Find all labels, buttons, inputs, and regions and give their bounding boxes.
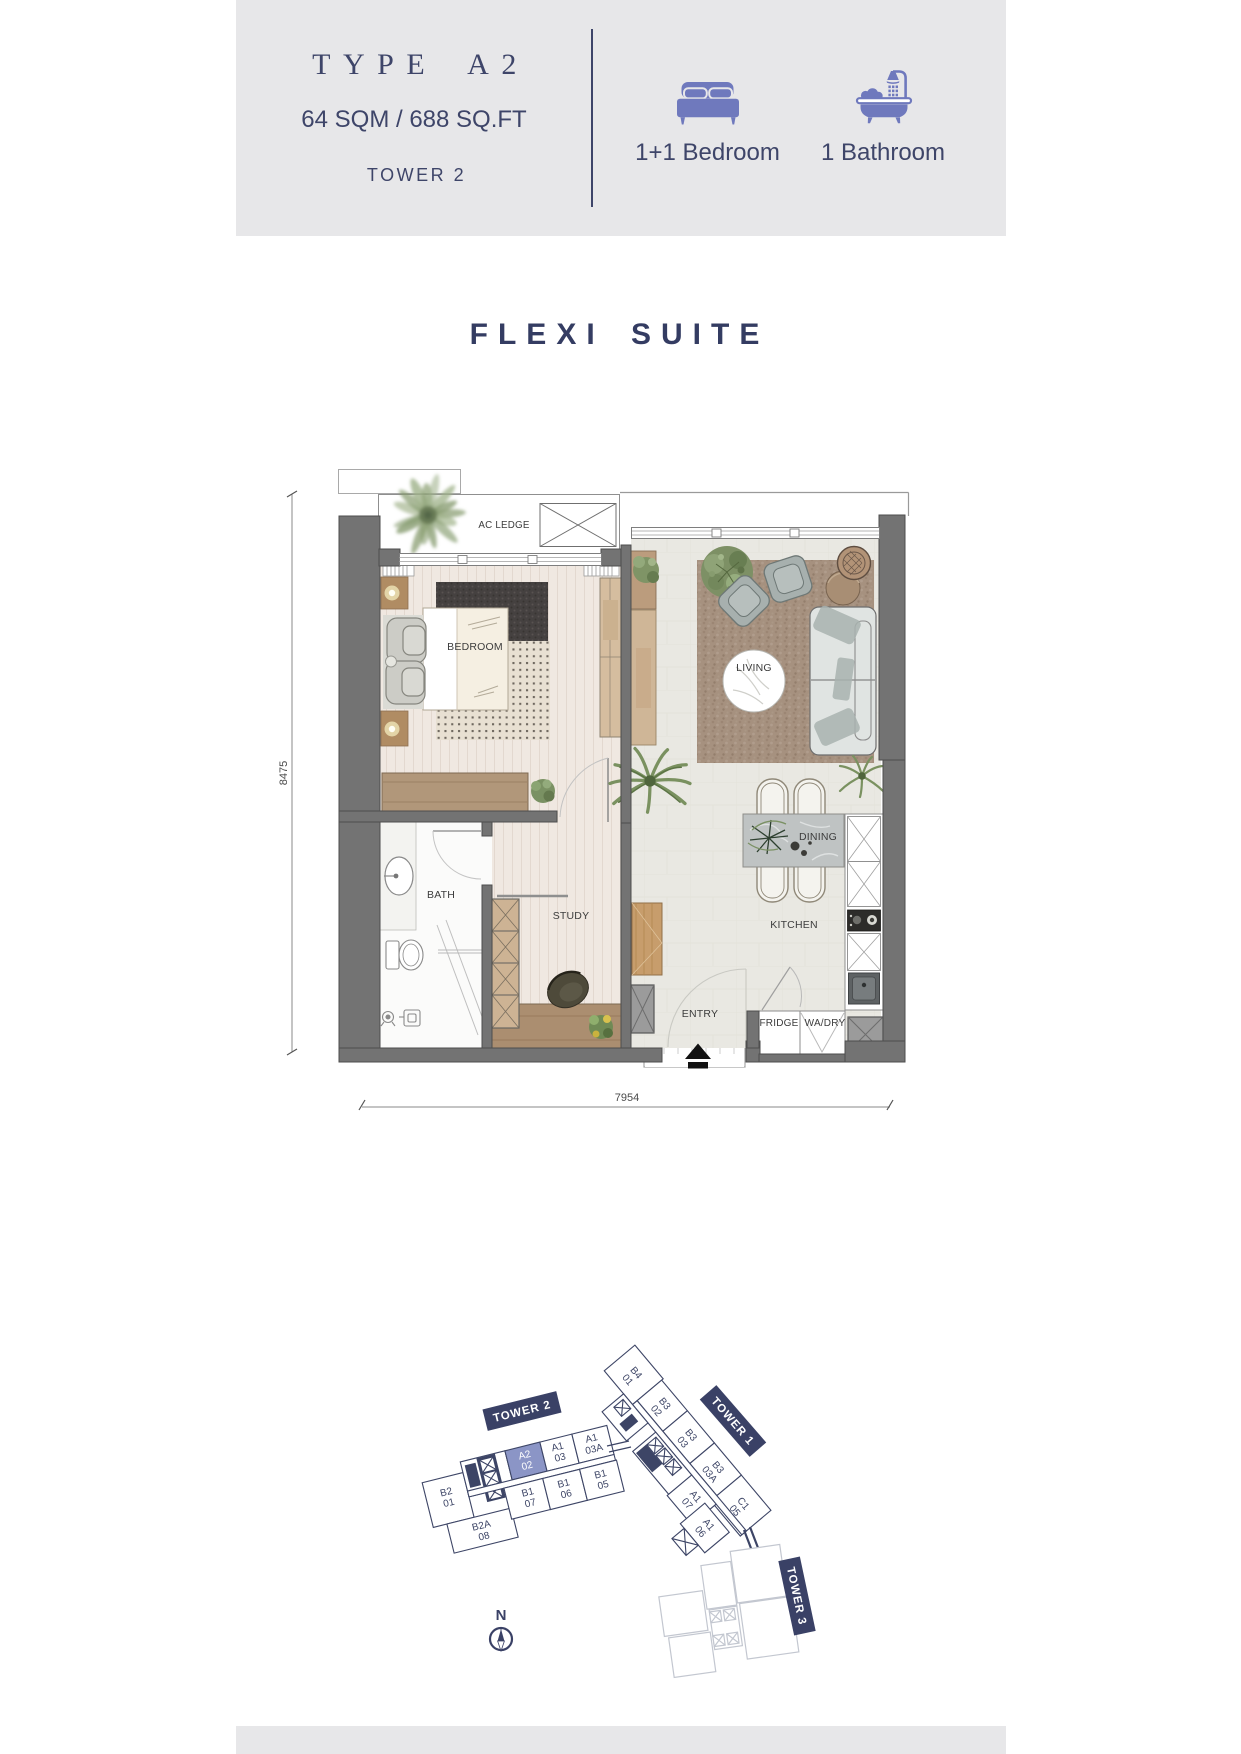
svg-text:FRIDGE: FRIDGE — [760, 1018, 799, 1029]
svg-text:BEDROOM: BEDROOM — [447, 641, 503, 653]
svg-text:7954: 7954 — [615, 1092, 639, 1104]
svg-text:BATH: BATH — [427, 889, 455, 901]
svg-text:8475: 8475 — [278, 761, 290, 785]
svg-text:STUDY: STUDY — [553, 910, 590, 922]
svg-text:DINING: DINING — [799, 831, 837, 843]
svg-text:LIVING: LIVING — [736, 662, 772, 674]
svg-text:AC LEDGE: AC LEDGE — [478, 520, 529, 531]
svg-text:TOWER 1: TOWER 1 — [708, 1395, 756, 1448]
svg-text:KITCHEN: KITCHEN — [770, 919, 818, 931]
svg-text:N: N — [496, 1607, 507, 1624]
svg-text:WA/DRY: WA/DRY — [805, 1018, 846, 1029]
svg-text:ENTRY: ENTRY — [682, 1008, 718, 1020]
